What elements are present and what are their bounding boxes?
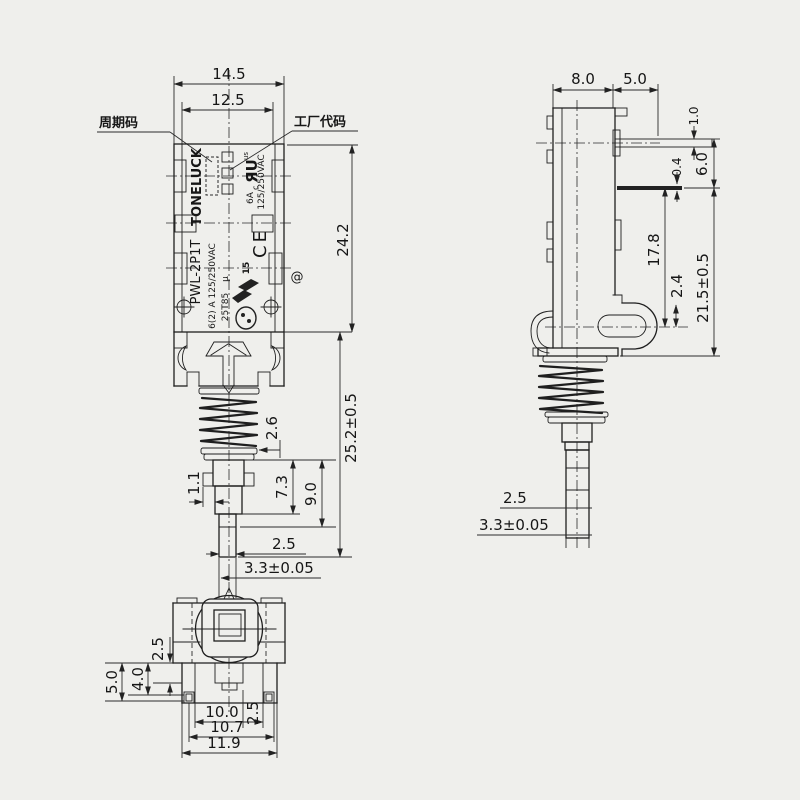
model-marking: PWL-2P1T: [189, 240, 204, 305]
dim-bottom-edge-offset: 2.5: [149, 637, 167, 661]
mu-symbol: μ: [221, 276, 231, 282]
dim-front-total-height: 25.2±0.5: [342, 393, 360, 463]
dim-bottom-foot-inner: 4.0: [129, 667, 147, 691]
front-plunger: [203, 460, 254, 557]
engineering-drawing: 14.5 12.5 周期码 工厂代码: [0, 0, 800, 800]
side-height-dimensions: 17.8 2.4 21.5±0.5: [620, 188, 720, 356]
front-view: 14.5 12.5 周期码 工厂代码: [97, 65, 360, 598]
brand-marking: TONELUCK: [190, 147, 205, 226]
dim-front-tip-diameter: 3.3±0.05: [244, 559, 314, 577]
bottom-view: 2.5 4.0 5.0 10.0 2.5 10.7 11.9: [103, 582, 285, 758]
dim-side-body-height: 17.8: [645, 233, 663, 266]
side-bracket: [531, 295, 657, 356]
ul-current-marking: 6A: [246, 191, 256, 204]
dim-bottom-tab-offset: 2.5: [244, 701, 262, 725]
enec-number: 15: [242, 262, 252, 275]
dim-side-tip-width: 2.5: [503, 489, 527, 507]
factory-code-area: [222, 152, 233, 194]
ce-mark-icon: CE: [250, 228, 271, 258]
bottom-left-dimensions: 2.5 4.0 5.0: [103, 637, 184, 701]
dim-front-spring-step: 2.6: [263, 416, 281, 440]
dim-front-width-inner: 12.5: [211, 91, 244, 109]
side-top-dimensions: 8.0 5.0: [553, 70, 658, 136]
vde-cert-icon: [232, 279, 259, 303]
front-tip-dimensions: 2.5 3.3±0.05: [206, 535, 321, 598]
at-symbol-marking: @: [291, 270, 304, 285]
dim-front-width-outer: 14.5: [212, 65, 245, 83]
side-spring: [539, 356, 608, 423]
cycle-code-label: 周期码: [99, 116, 138, 131]
rating-marking-2: 25T85: [221, 293, 231, 321]
side-view: 8.0 5.0 1.0 0.4: [477, 70, 720, 548]
ul-us-label: us: [242, 152, 250, 160]
dim-front-shaft-upper: 7.3: [273, 475, 291, 499]
dim-side-terminal-height: 6.0: [693, 152, 711, 176]
dim-bottom-foot-height: 5.0: [103, 670, 121, 694]
factory-code-label: 工厂代码: [294, 114, 346, 130]
ul-voltage-marking: 125/250VAC: [257, 154, 267, 209]
dim-side-terminal-length: 5.0: [623, 70, 647, 88]
dim-side-tip-diameter: 3.3±0.05: [479, 516, 549, 534]
rating-marking-1: 6(2) A 125/250VAC: [208, 243, 218, 329]
dim-front-shaft-total: 9.0: [302, 482, 320, 506]
dim-side-terminal-thickness: 1.0: [687, 106, 701, 125]
dim-front-body-height: 24.2: [334, 223, 352, 256]
dim-front-ear-width: 1.1: [185, 471, 203, 495]
dim-side-total-height: 21.5±0.5: [694, 253, 712, 323]
dim-front-tip-width: 2.5: [272, 535, 296, 553]
side-tip-dimensions: 2.5 3.3±0.05: [477, 489, 592, 548]
drawing-canvas: 14.5 12.5 周期码 工厂代码: [0, 0, 800, 800]
cert-oval-icon: [236, 307, 256, 329]
dim-side-body-depth: 8.0: [571, 70, 595, 88]
dim-bottom-outer-width: 11.9: [207, 734, 240, 752]
dim-side-bracket-offset: 2.4: [668, 274, 686, 298]
screw-boss-right-icon: [261, 297, 281, 317]
